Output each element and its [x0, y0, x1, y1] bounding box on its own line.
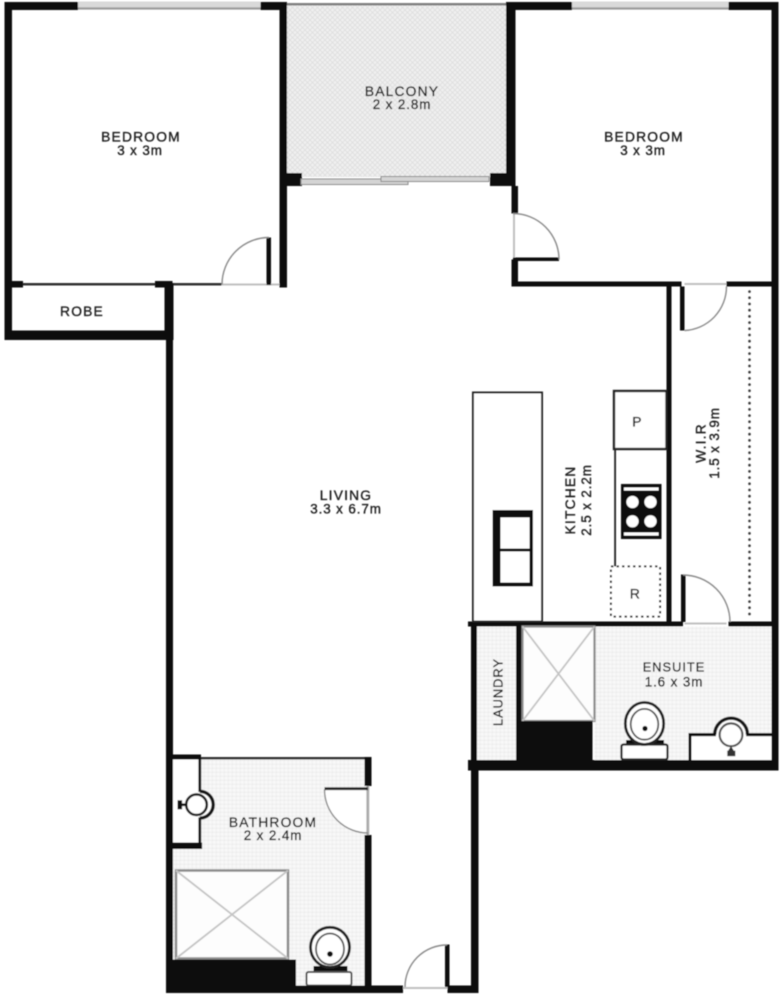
svg-text:3 x 3m: 3 x 3m — [620, 143, 666, 158]
svg-text:3 x 3m: 3 x 3m — [117, 143, 163, 158]
svg-text:1.6 x 3m: 1.6 x 3m — [645, 675, 704, 690]
svg-text:3.3 x 6.7m: 3.3 x 6.7m — [310, 502, 382, 517]
svg-text:2 x 2.4m: 2 x 2.4m — [244, 828, 303, 843]
svg-text:KITCHEN: KITCHEN — [563, 466, 578, 535]
svg-text:P: P — [632, 415, 642, 430]
svg-text:2.5 x 2.2m: 2.5 x 2.2m — [579, 464, 594, 536]
svg-text:R: R — [630, 587, 641, 602]
svg-text:LAUNDRY: LAUNDRY — [491, 658, 506, 726]
svg-text:2 x 2.8m: 2 x 2.8m — [373, 97, 432, 112]
svg-text:ROBE: ROBE — [60, 304, 104, 319]
svg-text:ENSUITE: ENSUITE — [643, 660, 705, 675]
svg-text:1.5 x 3.9m: 1.5 x 3.9m — [707, 407, 722, 479]
